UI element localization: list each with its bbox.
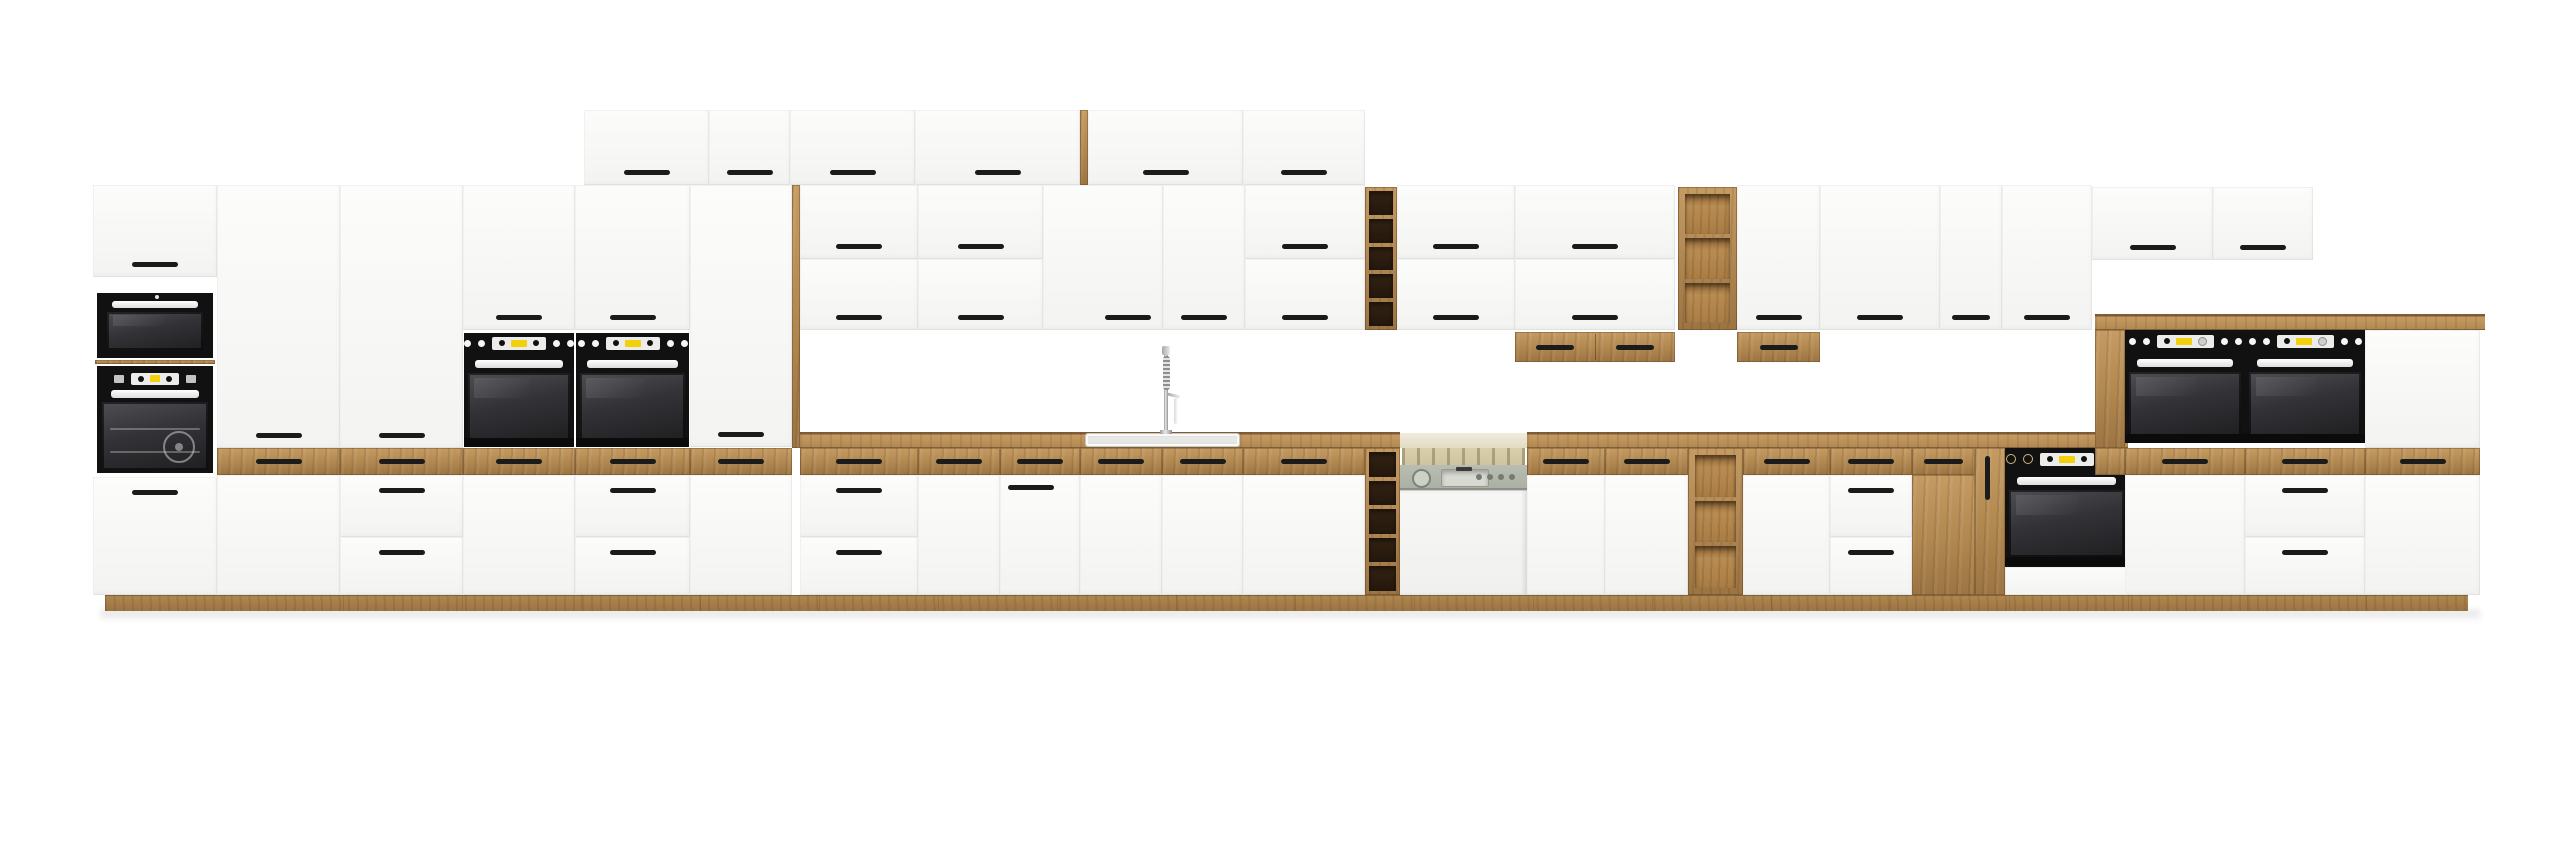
oven-control-panel (97, 369, 213, 388)
door-handle (1848, 459, 1894, 464)
cabinet-front (918, 475, 1000, 595)
oven-knob (478, 340, 485, 347)
wood-front (1605, 448, 1688, 475)
cabinet-front (463, 185, 575, 330)
oven-knob (2235, 338, 2242, 345)
built-in-oven (464, 333, 574, 447)
door-handle (1105, 315, 1151, 320)
faucet-lever (1167, 392, 1180, 398)
door-handle (936, 459, 982, 464)
door-handle (1181, 315, 1227, 320)
door-handle (718, 459, 764, 464)
oven-control-panel (464, 333, 574, 353)
door-handle (958, 315, 1004, 320)
oven-knob (2341, 338, 2348, 345)
cabinet-front (1515, 259, 1675, 330)
door-handle (836, 459, 882, 464)
door-handle (379, 488, 425, 493)
wood-front (1527, 448, 1605, 475)
open-shelf (1678, 187, 1737, 330)
door-handle (610, 488, 656, 493)
oven-handle-bar (111, 390, 199, 398)
door-handle (1857, 315, 1903, 320)
cabinet-front (1605, 475, 1688, 595)
oven-control-panel (2245, 330, 2365, 352)
door-handle (1756, 315, 1802, 320)
dishwasher-dial (1412, 469, 1431, 488)
door-handle (1572, 315, 1618, 320)
shelf-cubby (1695, 455, 1736, 497)
door-handle (132, 262, 178, 267)
dishwasher-open-lid (1400, 433, 1527, 448)
oven-knob (592, 340, 599, 347)
microwave-handle-bar (112, 301, 198, 308)
dishwasher-button (1498, 474, 1504, 480)
door-handle (1543, 459, 1589, 464)
wood-panel (95, 360, 215, 364)
oven-knob (2143, 338, 2150, 345)
faucet-head (1162, 346, 1170, 355)
dishwasher-button (1476, 474, 1482, 480)
countertop (1527, 432, 2128, 448)
oven-handle-bar (587, 360, 677, 368)
oven-display-icon (186, 375, 196, 383)
cabinet-front (1088, 110, 1243, 185)
door-handle (379, 433, 425, 438)
dishwasher-vent (1456, 467, 1472, 471)
wood-front (800, 448, 918, 475)
oven-handle-bar (2257, 359, 2353, 367)
shelf-cubby (1369, 274, 1393, 298)
door-handle (1572, 244, 1618, 249)
wood-front (2095, 448, 2125, 475)
oven-knob (578, 340, 585, 347)
built-in-oven (576, 333, 689, 447)
shelf-cubby (1695, 501, 1736, 543)
shelf-cubby (1369, 219, 1393, 243)
oven-display-icon (114, 375, 124, 383)
wood-front (1000, 448, 1080, 475)
door-handle (718, 432, 764, 437)
dishwasher-button (1487, 474, 1493, 480)
cabinet-front (1163, 185, 1245, 330)
cabinet-front (1940, 185, 2002, 330)
shelf-cubby (1369, 509, 1396, 534)
glass-reflection (113, 315, 166, 326)
microwave-glass (107, 312, 203, 350)
cabinet-front (1397, 259, 1515, 330)
door-handle (256, 459, 302, 464)
cabinet-front (2245, 475, 2365, 537)
door-handle (1098, 459, 1144, 464)
wood-front (2125, 448, 2245, 475)
oven-display (2157, 335, 2214, 348)
door-handle (496, 315, 542, 320)
wood-front (1162, 448, 1243, 475)
built-in-oven (2245, 330, 2365, 443)
oven-control-panel (2125, 330, 2245, 352)
door-handle (727, 170, 773, 175)
oven-bottom-strip (2245, 434, 2365, 443)
door-handle (830, 170, 876, 175)
cabinet-front (1245, 259, 1365, 330)
open-shelf (1365, 448, 1400, 595)
wood-front (1975, 448, 2005, 595)
glass-reflection (2256, 377, 2318, 396)
wood-front (1912, 448, 1975, 475)
cabinet-front (1737, 185, 1820, 330)
door-handle (1017, 459, 1063, 464)
wood-front (340, 448, 463, 475)
door-handle (958, 244, 1004, 249)
glass-reflection (474, 378, 530, 398)
faucet (1146, 346, 1186, 434)
door-handle (1433, 315, 1479, 320)
cabinet-front (918, 259, 1043, 330)
cabinet-front (2125, 475, 2245, 595)
door-handle (1848, 550, 1894, 555)
under-cabinet-box (1515, 332, 1675, 362)
door-handle (1764, 459, 1810, 464)
cabinet-front (1243, 475, 1365, 595)
oven-handle-bar (2017, 477, 2115, 485)
cabinet-front (1515, 185, 1675, 259)
wood-front (463, 448, 575, 475)
door-handle (1433, 244, 1479, 249)
glass-reflection (2016, 495, 2079, 515)
oven-glass (2009, 490, 2124, 557)
cabinet-front (1527, 475, 1605, 595)
cabinet-front (2002, 185, 2092, 330)
oven-glass (102, 402, 208, 470)
oven-glass (580, 373, 685, 440)
door-handle (836, 315, 882, 320)
oven-knob (2023, 454, 2033, 464)
oven-glass (2129, 372, 2241, 436)
cabinet-front (790, 110, 915, 185)
cabinet-front (217, 185, 340, 448)
door-handle (2130, 245, 2176, 250)
door-handle (836, 550, 882, 555)
cabinet-front (463, 475, 575, 595)
oven-fan (163, 431, 195, 463)
door-handle (1985, 456, 1990, 500)
open-shelf (1365, 187, 1397, 330)
cabinet-front (1245, 185, 1365, 259)
door-handle (1282, 315, 1328, 320)
cabinet-front (800, 537, 918, 595)
shelf-cubby (1369, 538, 1396, 563)
glass-reflection (586, 378, 644, 398)
door-handle (132, 490, 178, 495)
oven-shelf-line (110, 428, 199, 430)
oven-knob (2263, 338, 2270, 345)
door-handle (1282, 244, 1328, 249)
door-handle (2024, 315, 2070, 320)
oven-knob (2006, 454, 2016, 464)
oven-housing-front (2005, 567, 2128, 595)
shelf-cubby (1369, 481, 1396, 506)
wood-front (1080, 448, 1162, 475)
cabinet-front (1830, 475, 1912, 537)
wood-panel (2095, 330, 2125, 448)
cabinet-front (1043, 185, 1163, 330)
cabinet-front (800, 259, 918, 330)
oven-display (131, 373, 179, 385)
cabinet-front (93, 477, 217, 595)
door-handle (2282, 488, 2328, 493)
door-handle (610, 459, 656, 464)
cabinet-front (1080, 475, 1162, 595)
door-handle (2282, 550, 2328, 555)
cabinet-front (217, 475, 340, 595)
plinth (105, 595, 2468, 611)
cabinet-front (575, 475, 690, 537)
sideboard-countertop (2095, 314, 2485, 330)
cabinet-front (584, 110, 709, 185)
oven-knob (553, 340, 560, 347)
door-handle (1616, 345, 1654, 350)
shelf-cubby (1695, 546, 1736, 588)
oven-bottom-strip (2005, 557, 2128, 566)
wood-front (1912, 475, 1975, 595)
door-handle (1760, 345, 1798, 350)
door-handle (1143, 170, 1189, 175)
door-handle (1624, 459, 1670, 464)
faucet-spring (1163, 356, 1170, 390)
kitchen-product-image (0, 0, 2560, 848)
oven-display (606, 337, 660, 350)
door-handle (1952, 315, 1990, 320)
wood-front (2365, 448, 2480, 475)
cabinet-front (800, 475, 918, 537)
oven-knob (2355, 338, 2362, 345)
built-in-microwave (97, 293, 213, 358)
cabinet-front (1830, 537, 1912, 595)
wood-panel (1080, 110, 1088, 185)
door-handle (379, 459, 425, 464)
door-handle (836, 488, 882, 493)
oven-knob (2249, 338, 2256, 345)
open-shelf (1688, 448, 1743, 595)
cabinet-front (1000, 475, 1080, 595)
wood-panel (792, 185, 800, 448)
cabinet-front (918, 185, 1043, 259)
shelf-cubby (1369, 452, 1396, 477)
cabinet-front (2092, 187, 2213, 260)
shelf-cubby (1369, 566, 1396, 591)
oven-knob (567, 340, 574, 347)
oven-knob (2129, 338, 2136, 345)
cabinet-front (2365, 475, 2480, 595)
door-handle (1924, 459, 1963, 464)
microwave-indicator (155, 295, 159, 299)
cabinet-front (340, 475, 463, 537)
dishwasher-button (1509, 474, 1515, 480)
door-handle (836, 244, 882, 249)
cabinet-front (93, 185, 217, 277)
shelf-cubby (1685, 238, 1730, 278)
cabinet-front (2245, 537, 2365, 595)
oven-display (2040, 453, 2094, 466)
wood-front (575, 448, 690, 475)
built-in-oven (97, 366, 213, 473)
cabinet-front (2213, 187, 2313, 260)
door-handle (496, 459, 542, 464)
door-handle (1281, 459, 1327, 464)
oven-control-panel (576, 333, 689, 353)
cabinet-front (340, 537, 463, 595)
door-handle (2282, 459, 2328, 464)
cabinet-front (2365, 330, 2480, 448)
cabinet-front (575, 537, 690, 595)
wood-front (1830, 448, 1912, 475)
oven-display (2277, 335, 2334, 348)
door-handle (256, 433, 302, 438)
wood-front (690, 448, 792, 475)
cabinet-front (690, 185, 792, 447)
shelf-cubby (1685, 283, 1730, 323)
door-handle (975, 170, 1021, 175)
cabinet-front (915, 110, 1080, 185)
cabinet-front (1243, 110, 1365, 185)
wood-front (217, 448, 340, 475)
oven-glass (2249, 372, 2361, 436)
oven-knob (667, 340, 674, 347)
dishwasher (1400, 433, 1527, 595)
door-handle (610, 550, 656, 555)
oven-bottom-strip (2125, 434, 2245, 443)
under-cabinet-box (1737, 332, 1820, 362)
oven-handle-bar (2137, 359, 2233, 367)
shelf-cubby (1685, 194, 1730, 234)
floor-shadow (100, 610, 2480, 622)
wood-front (918, 448, 1000, 475)
box-divider (1595, 334, 1596, 360)
oven-display (492, 337, 546, 350)
cabinet-front (575, 185, 690, 330)
oven-glass (468, 373, 570, 440)
door-handle (1180, 459, 1226, 464)
door-handle (610, 315, 656, 320)
shelf-cubby (1369, 302, 1393, 326)
oven-bottom-strip (464, 438, 574, 447)
faucet-sprayer (1174, 398, 1178, 424)
door-handle (2400, 459, 2446, 464)
door-handle (379, 550, 425, 555)
door-handle (2162, 459, 2208, 464)
dishwasher-interior (1402, 448, 1525, 465)
dishwasher-door (1400, 490, 1527, 595)
built-in-oven (2125, 330, 2245, 443)
oven-handle-bar (475, 360, 563, 368)
cabinet-front (690, 475, 792, 595)
shelf-cubby (1369, 247, 1393, 271)
oven-bottom-strip (576, 438, 689, 447)
oven-knob (464, 340, 471, 347)
wood-front (1243, 448, 1365, 475)
cabinet-front (340, 185, 463, 448)
cabinet-front (1397, 185, 1515, 259)
wood-front (1743, 448, 1830, 475)
door-handle (1848, 488, 1894, 493)
oven-knob (2221, 338, 2228, 345)
glass-reflection (2136, 377, 2198, 396)
cabinet-front (1820, 185, 1940, 330)
faucet-base (1160, 430, 1172, 434)
sink (1085, 433, 1240, 447)
oven-knob (681, 340, 688, 347)
door-handle (1008, 485, 1054, 490)
cabinet-front (1743, 475, 1830, 595)
door-handle (1536, 345, 1574, 350)
cabinet-front (800, 185, 918, 259)
cabinet-front (1162, 475, 1243, 595)
door-handle (624, 170, 670, 175)
cabinet-front (709, 110, 790, 185)
shelf-cubby (1369, 191, 1393, 215)
door-handle (2240, 245, 2286, 250)
wood-front (2245, 448, 2365, 475)
door-handle (1281, 170, 1327, 175)
